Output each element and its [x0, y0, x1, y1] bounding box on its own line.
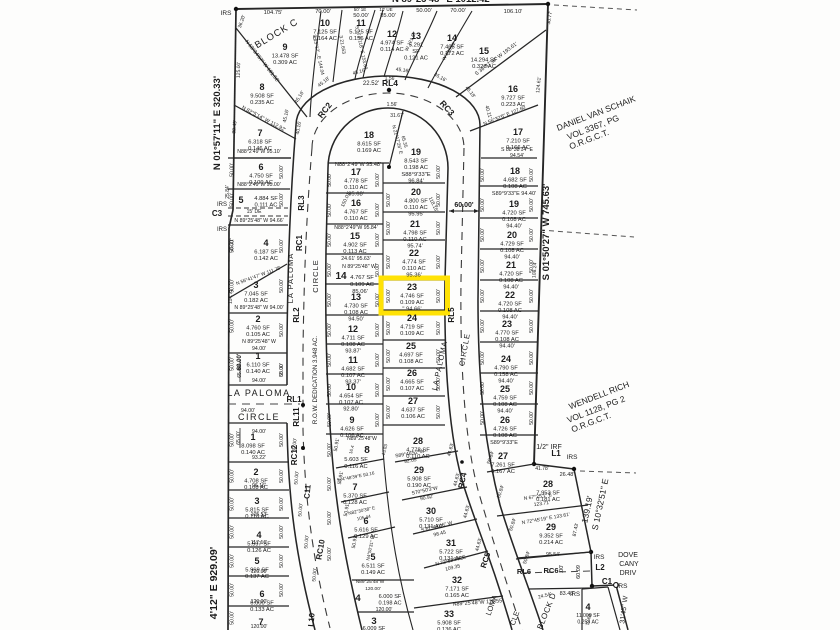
svg-text:22.52': 22.52' — [363, 81, 379, 87]
svg-text:0.110 AC: 0.110 AC — [402, 266, 425, 272]
svg-text:15: 15 — [350, 231, 360, 241]
svg-text:50.00': 50.00' — [375, 383, 381, 397]
svg-text:4: 4 — [355, 593, 361, 604]
svg-text:L2: L2 — [595, 563, 605, 572]
svg-text:50.00': 50.00' — [327, 353, 333, 367]
svg-text:70.00': 70.00' — [450, 8, 466, 14]
svg-text:0.108 AC: 0.108 AC — [341, 342, 365, 348]
svg-text:50.00': 50.00' — [529, 168, 535, 182]
svg-text:23: 23 — [407, 282, 417, 292]
svg-text:4.626 SF: 4.626 SF — [340, 427, 364, 433]
svg-text:5: 5 — [254, 556, 259, 566]
svg-text:4.760 SF: 4.760 SF — [246, 326, 270, 332]
svg-text:4.729 SF: 4.729 SF — [500, 242, 524, 248]
svg-text:50.00': 50.00' — [480, 259, 486, 273]
svg-text:9: 9 — [282, 42, 287, 52]
svg-text:19: 19 — [411, 147, 421, 157]
svg-text:RL6: RL6 — [517, 567, 531, 576]
svg-text:0.149 AC: 0.149 AC — [361, 570, 385, 576]
svg-text:DOVE: DOVE — [618, 552, 638, 559]
svg-text:50.00': 50.00' — [386, 405, 392, 419]
svg-text:RL2: RL2 — [292, 307, 301, 323]
svg-text:95.36': 95.36' — [406, 273, 422, 279]
svg-text:0.169 AC: 0.169 AC — [357, 148, 381, 154]
svg-text:5.125 SF: 5.125 SF — [349, 30, 373, 36]
svg-text:1.56': 1.56' — [385, 76, 396, 82]
svg-text:25: 25 — [500, 384, 510, 394]
svg-text:50.00': 50.00' — [279, 583, 285, 597]
svg-text:N88°2'49"W 95.84': N88°2'49"W 95.84' — [334, 225, 377, 231]
svg-text:4.654 SF: 4.654 SF — [339, 394, 363, 400]
svg-text:DRIV: DRIV — [620, 570, 637, 577]
svg-text:16: 16 — [351, 198, 361, 208]
svg-text:11: 11 — [348, 355, 358, 365]
svg-text:C11: C11 — [302, 484, 312, 500]
svg-text:0.110 AC: 0.110 AC — [344, 216, 367, 222]
svg-text:0.108 AC: 0.108 AC — [500, 248, 524, 254]
svg-text:29: 29 — [414, 465, 424, 475]
svg-text:RC1: RC1 — [295, 234, 304, 251]
svg-text:50.00': 50.00' — [230, 163, 236, 177]
svg-text:RL1: RL1 — [286, 395, 302, 404]
svg-text:83.43': 83.43' — [560, 591, 575, 597]
svg-text:31: 31 — [446, 538, 456, 548]
svg-text:16: 16 — [508, 84, 518, 94]
svg-text:50.00': 50.00' — [386, 255, 392, 269]
svg-text:0.110 AC: 0.110 AC — [403, 237, 426, 243]
svg-text:65.00': 65.00' — [279, 363, 285, 377]
svg-text:5: 5 — [238, 195, 243, 205]
svg-text:120.00': 120.00' — [251, 624, 268, 630]
svg-text:0.133 AC: 0.133 AC — [250, 607, 274, 613]
svg-text:4.719 SF: 4.719 SF — [400, 325, 424, 331]
svg-text:0.105 AC: 0.105 AC — [246, 332, 270, 338]
svg-text:7.210 SF: 7.210 SF — [506, 139, 530, 145]
svg-text:50.00': 50.00' — [529, 198, 535, 212]
svg-text:28: 28 — [543, 479, 553, 489]
svg-text:15: 15 — [479, 46, 489, 56]
svg-text:0.111 AC: 0.111 AC — [255, 203, 278, 209]
svg-text:7.171 SF: 7.171 SF — [445, 587, 469, 593]
svg-text:92.80': 92.80' — [343, 407, 359, 413]
svg-text:6.318 SF: 6.318 SF — [248, 140, 272, 146]
svg-text:50.00': 50.00' — [480, 289, 486, 303]
svg-text:50.00': 50.00' — [480, 198, 486, 212]
svg-text:8.543 SF: 8.543 SF — [404, 159, 428, 165]
svg-text:0.113 AC: 0.113 AC — [343, 249, 366, 255]
svg-text:CIRCLE: CIRCLE — [311, 259, 320, 293]
svg-text:50.00': 50.00' — [327, 477, 333, 491]
svg-text:IRS: IRS — [221, 10, 233, 17]
svg-text:0.106 AC: 0.106 AC — [401, 414, 425, 420]
svg-text:IRS: IRS — [567, 454, 579, 461]
svg-text:60.00': 60.00' — [237, 353, 243, 370]
svg-text:50.00': 50.00' — [293, 471, 300, 485]
svg-text:41.78': 41.78' — [535, 466, 549, 472]
svg-text:50.00': 50.00' — [480, 228, 486, 242]
svg-text:50.00': 50.00' — [230, 554, 236, 568]
svg-text:50.00': 50.00' — [375, 263, 381, 277]
svg-text:0.114 AC: 0.114 AC — [380, 47, 403, 53]
svg-text:12: 12 — [348, 324, 358, 334]
svg-text:50.00': 50.00' — [230, 239, 236, 253]
svg-text:0.182 AC: 0.182 AC — [244, 298, 268, 304]
svg-text:C1: C1 — [602, 577, 613, 586]
svg-text:94.00': 94.00' — [252, 429, 266, 435]
svg-text:R.O.W. DEDICATION 3.948 AC.: R.O.W. DEDICATION 3.948 AC. — [312, 336, 319, 425]
svg-text:50.00': 50.00' — [375, 173, 381, 187]
svg-text:0.108 AC: 0.108 AC — [493, 402, 517, 408]
svg-text:RL3: RL3 — [297, 195, 306, 211]
svg-text:94.54': 94.54' — [510, 153, 524, 159]
svg-text:50.00': 50.00' — [375, 323, 381, 337]
svg-text:4.774 SF: 4.774 SF — [402, 260, 426, 266]
svg-text:5.722 SF: 5.722 SF — [439, 550, 463, 556]
svg-text:0.108 AC: 0.108 AC — [503, 184, 527, 190]
svg-text:4.726 SF: 4.726 SF — [493, 427, 517, 433]
svg-text:0.309 AC: 0.309 AC — [273, 60, 297, 66]
svg-text:50.00': 50.00' — [327, 383, 333, 397]
svg-text:70.00': 70.00' — [315, 9, 331, 15]
svg-text:50.00': 50.00' — [230, 611, 236, 625]
svg-text:50.00': 50.00' — [230, 193, 236, 207]
svg-text:0.165 AC: 0.165 AC — [445, 593, 469, 599]
svg-text:50.00': 50.00' — [297, 503, 304, 517]
svg-text:13: 13 — [351, 292, 361, 302]
svg-text:50.00': 50.00' — [529, 351, 535, 365]
svg-text:0.107 AC: 0.107 AC — [400, 386, 424, 392]
svg-text:7.261 SF: 7.261 SF — [491, 463, 515, 469]
svg-text:125.00': 125.00' — [236, 62, 243, 78]
svg-text:50.00': 50.00' — [230, 583, 236, 597]
svg-text:5.908 SF: 5.908 SF — [407, 477, 431, 483]
svg-text:8: 8 — [259, 82, 264, 92]
svg-text:50.00': 50.00' — [279, 525, 285, 539]
svg-text:0.167 AC: 0.167 AC — [491, 469, 515, 475]
svg-text:1.56': 1.56' — [387, 102, 398, 108]
svg-text:4.902 SF: 4.902 SF — [343, 243, 367, 249]
svg-text:0.108 AC: 0.108 AC — [344, 310, 368, 316]
svg-text:N88°2'49"W 95.48': N88°2'49"W 95.48' — [335, 162, 381, 168]
svg-text:8: 8 — [364, 445, 370, 456]
svg-text:.00': .00' — [559, 565, 565, 574]
svg-text:50.00': 50.00' — [375, 233, 381, 247]
svg-text:50.00': 50.00' — [436, 221, 442, 235]
svg-text:50.00': 50.00' — [529, 319, 535, 333]
svg-text:4.637 SF: 4.637 SF — [401, 408, 425, 414]
svg-text:IRS: IRS — [594, 554, 606, 561]
svg-text:4.800 SF: 4.800 SF — [404, 199, 428, 205]
svg-text:4'12" E 929.09': 4'12" E 929.09' — [208, 547, 220, 619]
svg-text:4.884 SF: 4.884 SF — [254, 196, 278, 202]
svg-text:4.720 SF: 4.720 SF — [502, 211, 526, 217]
svg-text:17: 17 — [513, 127, 523, 137]
svg-text:5.908 SF: 5.908 SF — [437, 621, 461, 627]
svg-text:2: 2 — [253, 467, 258, 477]
svg-text:94.00': 94.00' — [252, 378, 266, 384]
svg-text:4.770 SF: 4.770 SF — [495, 331, 519, 337]
svg-text:L1: L1 — [551, 449, 561, 458]
svg-text:0.108 AC: 0.108 AC — [502, 217, 526, 223]
svg-text:94.40': 94.40' — [499, 344, 515, 350]
svg-text:24: 24 — [501, 354, 511, 364]
svg-text:95.54': 95.54' — [546, 552, 560, 558]
svg-text:7.045 SF: 7.045 SF — [244, 292, 268, 298]
svg-text:50.00': 50.00' — [279, 193, 285, 207]
svg-text:0.214 AC: 0.214 AC — [539, 540, 563, 546]
svg-text:13.478 SF: 13.478 SF — [272, 54, 299, 60]
svg-text:4.682 SF: 4.682 SF — [341, 367, 365, 373]
svg-text:SF: SF — [412, 49, 420, 55]
svg-text:5.370 SF: 5.370 SF — [343, 494, 367, 500]
svg-text:4.711 SF: 4.711 SF — [341, 336, 365, 342]
svg-text:93.87': 93.87' — [345, 349, 361, 355]
svg-text:50.00': 50.00' — [303, 535, 310, 549]
svg-text:N 89°25'48" W: N 89°25'48" W — [342, 264, 376, 270]
svg-text:24.61' 95.63': 24.61' 95.63' — [341, 256, 370, 262]
svg-text:" 94.66': " 94.66' — [402, 307, 421, 313]
svg-text:50.00': 50.00' — [480, 168, 486, 182]
svg-text:4.730 SF: 4.730 SF — [344, 304, 368, 310]
svg-text:S88°9'33"E: S88°9'33"E — [401, 172, 430, 178]
svg-text:120.00': 120.00' — [376, 607, 393, 613]
svg-text:50.00': 50.00' — [327, 511, 333, 525]
svg-text:50.00': 50.00' — [436, 165, 442, 179]
svg-text:96.84': 96.84' — [408, 179, 424, 185]
svg-text:IRS: IRS — [617, 583, 629, 590]
svg-text:LA PALOMA: LA PALOMA — [286, 253, 295, 304]
svg-text:C3: C3 — [212, 209, 223, 218]
svg-text:26: 26 — [407, 368, 417, 378]
svg-text:CANY: CANY — [619, 561, 639, 568]
svg-text:50.00': 50.00' — [279, 433, 285, 447]
svg-text:94.00': 94.00' — [241, 408, 255, 414]
svg-text:23: 23 — [502, 319, 512, 329]
svg-text:RL11: RL11 — [292, 407, 301, 427]
svg-text:0.110 AC: 0.110 AC — [404, 205, 427, 211]
svg-text:4.798 SF: 4.798 SF — [403, 231, 427, 237]
svg-text:27: 27 — [498, 451, 508, 461]
svg-text:0.108 AC: 0.108 AC — [399, 359, 423, 365]
svg-text:50.00': 50.00' — [327, 413, 333, 427]
svg-text:0.108 AC: 0.108 AC — [495, 337, 519, 343]
svg-text:RL5: RL5 — [447, 307, 456, 323]
svg-text:50.00': 50.00' — [386, 321, 392, 335]
svg-text:7.125 SF: 7.125 SF — [313, 30, 337, 36]
svg-text:0.198 AC: 0.198 AC — [378, 601, 401, 607]
svg-text:50' 1E: 50' 1E — [354, 7, 367, 12]
svg-text:4.759 SF: 4.759 SF — [493, 396, 517, 402]
svg-text:N88°2'49"W 95.00': N88°2'49"W 95.00' — [237, 182, 280, 188]
svg-text:50.00': 50.00' — [291, 438, 298, 452]
svg-text:L10: L10 — [306, 612, 316, 627]
svg-text:0.108 AC: 0.108 AC — [493, 433, 517, 439]
svg-text:50.00': 50.00' — [386, 193, 392, 207]
svg-text:9.727 SF: 9.727 SF — [501, 96, 525, 102]
svg-text:3: 3 — [254, 496, 259, 506]
svg-text:50.00': 50.00' — [529, 228, 535, 242]
svg-text:4.974 SF: 4.974 SF — [380, 41, 404, 47]
svg-text:LA PALOMA: LA PALOMA — [227, 388, 290, 398]
svg-text:50.00': 50.00' — [436, 289, 442, 303]
svg-text:50.00': 50.00' — [353, 13, 369, 19]
svg-text:105.53': 105.53' — [251, 512, 268, 518]
svg-text:25: 25 — [406, 341, 416, 351]
svg-text:4: 4 — [263, 238, 268, 248]
svg-text:18: 18 — [364, 130, 374, 140]
svg-text:9.352 SF: 9.352 SF — [539, 534, 563, 540]
svg-text:50.00': 50.00' — [279, 239, 285, 253]
svg-text:3: 3 — [253, 280, 258, 290]
svg-text:0.109 AC: 0.109 AC — [350, 282, 374, 288]
svg-text:0.126 AC: 0.126 AC — [247, 548, 271, 554]
svg-text:4.720 SF: 4.720 SF — [498, 302, 522, 308]
svg-text:50.00': 50.00' — [436, 255, 442, 269]
svg-text:4.750 SF: 4.750 SF — [249, 174, 273, 180]
svg-text:50.00': 50.00' — [327, 323, 333, 337]
svg-text:6: 6 — [259, 589, 264, 599]
svg-text:50.00': 50.00' — [327, 263, 333, 277]
svg-text:N 01°57'11" E 320.33': N 01°57'11" E 320.33' — [212, 76, 223, 170]
svg-text:117.16': 117.16' — [251, 540, 267, 546]
svg-text:6.187 SF: 6.187 SF — [254, 250, 278, 256]
svg-text:120.00': 120.00' — [251, 569, 268, 575]
svg-text:14: 14 — [335, 271, 347, 282]
svg-text:0.235 AC: 0.235 AC — [250, 100, 274, 106]
svg-text:50.00': 50.00' — [230, 497, 236, 511]
svg-text:10' UE: 10' UE — [379, 7, 392, 12]
svg-text:50.00': 50.00' — [436, 377, 442, 391]
svg-text:50.00': 50.00' — [230, 469, 236, 483]
svg-text:50.00': 50.00' — [436, 321, 442, 335]
svg-text:85.00': 85.00' — [380, 13, 396, 19]
svg-text:10: 10 — [346, 382, 356, 392]
svg-text:N 89°25'48" W 94.00': N 89°25'48" W 94.00' — [234, 305, 283, 311]
svg-text:26: 26 — [500, 415, 510, 425]
svg-text:50.00': 50.00' — [375, 293, 381, 307]
svg-text:30: 30 — [426, 506, 436, 516]
svg-text:RC6: RC6 — [543, 566, 558, 575]
svg-text:104.75': 104.75' — [264, 10, 283, 16]
svg-text:120.00': 120.00' — [365, 586, 381, 592]
svg-text:50.00': 50.00' — [386, 349, 392, 363]
svg-text:2: 2 — [255, 314, 260, 324]
svg-text:94.00': 94.00' — [252, 346, 266, 352]
svg-text:4.746 SF: 4.746 SF — [400, 294, 424, 300]
svg-text:4: 4 — [585, 602, 590, 612]
svg-text:106.10': 106.10' — [504, 9, 523, 15]
svg-text:15' DE: 15' DE — [247, 209, 263, 215]
svg-text:50.00': 50.00' — [386, 221, 392, 235]
svg-text:N 89°25'48" E 1012.42': N 89°25'48" E 1012.42' — [392, 0, 492, 5]
svg-text:0.107 AC: 0.107 AC — [341, 373, 365, 379]
svg-text:22: 22 — [409, 248, 419, 258]
svg-text:50.00': 50.00' — [529, 381, 535, 395]
svg-text:6.511 SF: 6.511 SF — [361, 564, 385, 570]
svg-text:88.49': 88.49' — [231, 120, 238, 134]
svg-text:0.108 AC: 0.108 AC — [498, 308, 522, 314]
svg-text:50.00': 50.00' — [327, 233, 333, 247]
svg-text:27: 27 — [408, 396, 418, 406]
svg-text:50.00': 50.00' — [436, 405, 442, 419]
svg-text:4.665 SF: 4.665 SF — [400, 380, 424, 386]
svg-text:21: 21 — [410, 219, 420, 229]
svg-text:28: 28 — [413, 436, 423, 446]
svg-text:60.00': 60.00' — [454, 202, 474, 209]
svg-text:4.778 SF: 4.778 SF — [344, 179, 368, 185]
svg-text:50.00': 50.00' — [327, 547, 333, 561]
svg-text:S89°9'33"E: S89°9'33"E — [490, 440, 518, 446]
svg-text:22: 22 — [505, 290, 515, 300]
svg-text:20: 20 — [411, 187, 421, 197]
svg-text:50.00': 50.00' — [416, 8, 432, 14]
svg-text:4.682 SF: 4.682 SF — [503, 178, 527, 184]
svg-text:4.790 SF: 4.790 SF — [494, 366, 518, 372]
svg-text:8.615 SF: 8.615 SF — [357, 142, 381, 148]
svg-text:0.158 AC: 0.158 AC — [494, 372, 518, 378]
svg-text:0.109 AC: 0.109 AC — [400, 300, 424, 306]
svg-text:24: 24 — [407, 313, 417, 323]
svg-text:94.40': 94.40' — [497, 409, 513, 415]
svg-text:4: 4 — [256, 530, 261, 540]
svg-text:4.767 SF: 4.767 SF — [350, 275, 374, 281]
svg-text:12: 12 — [387, 29, 397, 39]
svg-text:50.00': 50.00' — [436, 349, 442, 363]
svg-text:6.009 SF: 6.009 SF — [363, 626, 386, 630]
svg-text:50.00': 50.00' — [279, 497, 285, 511]
svg-text:0.107 AC: 0.107 AC — [339, 400, 363, 406]
svg-text:N89°25'48"W: N89°25'48"W — [356, 579, 385, 585]
svg-text:18: 18 — [510, 166, 520, 176]
svg-text:7: 7 — [352, 482, 357, 492]
svg-text:50.00': 50.00' — [230, 433, 236, 447]
svg-text:IRS: IRS — [217, 202, 227, 208]
svg-text:50.00': 50.00' — [279, 165, 285, 179]
svg-text:50.00': 50.00' — [480, 381, 486, 395]
svg-text:6: 6 — [258, 162, 263, 172]
svg-text:5.603 SF: 5.603 SF — [344, 457, 368, 463]
svg-text:50.00': 50.00' — [230, 279, 236, 293]
svg-text:50.00': 50.00' — [480, 319, 486, 333]
svg-text:95.95': 95.95' — [408, 212, 424, 218]
svg-text:4.720 SF: 4.720 SF — [499, 272, 523, 278]
svg-text:50.00': 50.00' — [327, 173, 333, 187]
svg-text:N 89°25'48" W: N 89°25'48" W — [242, 339, 276, 345]
svg-text:50.00': 50.00' — [279, 323, 285, 337]
svg-text:50.00': 50.00' — [327, 203, 333, 217]
svg-text:1: 1 — [255, 351, 260, 361]
svg-text:0.110 AC: 0.110 AC — [344, 185, 367, 191]
svg-text:9: 9 — [349, 415, 354, 425]
svg-text:93.22': 93.22' — [252, 455, 266, 461]
svg-text:0.140 AC: 0.140 AC — [246, 369, 270, 375]
svg-text:S89°9'33"E 94.40': S89°9'33"E 94.40' — [492, 191, 536, 197]
svg-text:0.121 AC: 0.121 AC — [404, 56, 428, 62]
svg-text:50.00': 50.00' — [529, 259, 535, 273]
svg-text:S 01°50'27" W 745.63': S 01°50'27" W 745.63' — [541, 184, 552, 281]
svg-text:0.142 AC: 0.142 AC — [254, 256, 278, 262]
svg-text:21: 21 — [506, 260, 516, 270]
svg-text:33: 33 — [444, 609, 454, 619]
svg-text:8.098 SF: 8.098 SF — [241, 444, 265, 450]
svg-text:7: 7 — [257, 128, 262, 138]
svg-text:N89°25'48"W: N89°25'48"W — [347, 436, 377, 442]
svg-text:50.00': 50.00' — [480, 411, 486, 425]
svg-text:6.110 SF: 6.110 SF — [246, 363, 270, 369]
svg-text:50.00': 50.00' — [230, 525, 236, 539]
svg-text:50.00': 50.00' — [529, 411, 535, 425]
svg-text:65.00': 65.00' — [236, 431, 242, 445]
